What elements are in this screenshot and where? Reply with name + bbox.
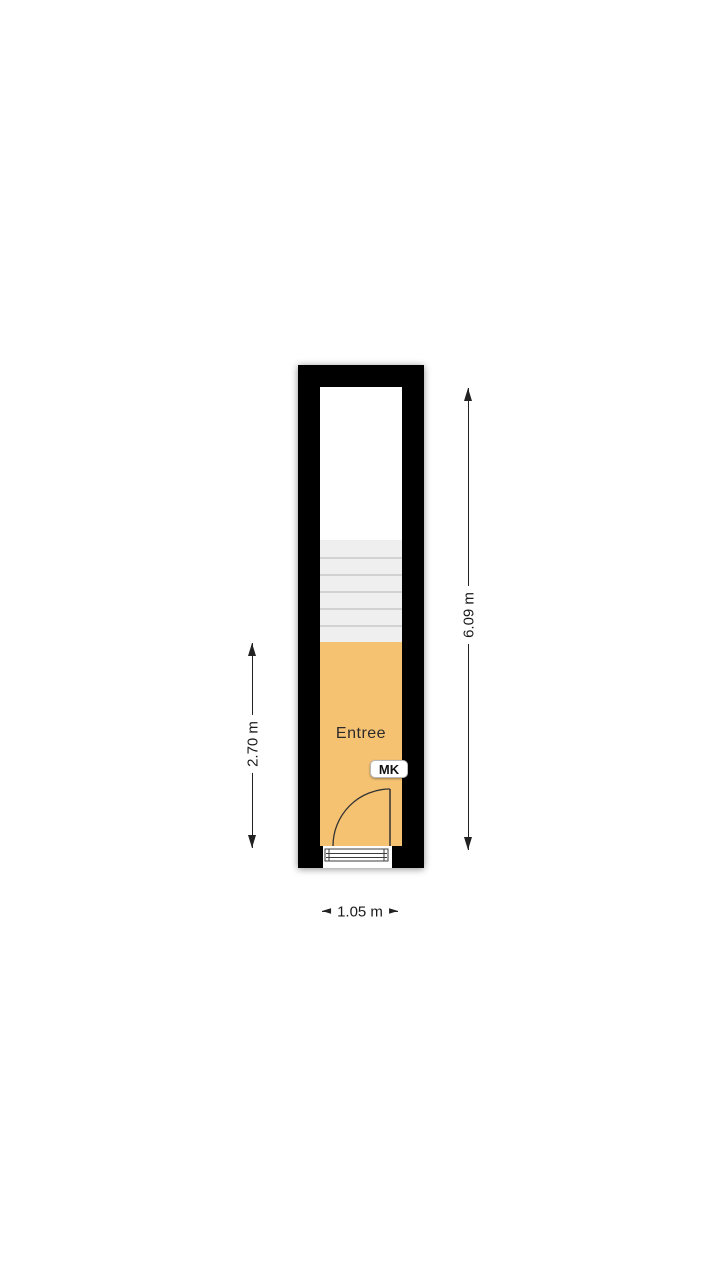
dimension-arrow-up-icon <box>248 643 256 656</box>
floorplan: Entree MK <box>298 365 424 868</box>
dimension-arrow-down-icon <box>464 837 472 850</box>
door-swing-arc <box>333 789 390 846</box>
dimension-total-height-label: 6.09 m <box>459 586 480 644</box>
meter-closet-badge: MK <box>370 760 408 778</box>
dimension-arrow-up-icon <box>464 388 472 401</box>
dimension-entree-height-label: 2.70 m <box>243 715 264 773</box>
door-sill <box>325 849 388 861</box>
floorplan-canvas: Entree MK 6.09 m 2.70 m <box>0 0 720 1279</box>
dimension-width-label: 1.05 m <box>331 902 389 923</box>
meter-closet-label: MK <box>379 762 399 777</box>
dimension-arrow-down-icon <box>248 835 256 848</box>
door-graphic <box>298 365 424 868</box>
